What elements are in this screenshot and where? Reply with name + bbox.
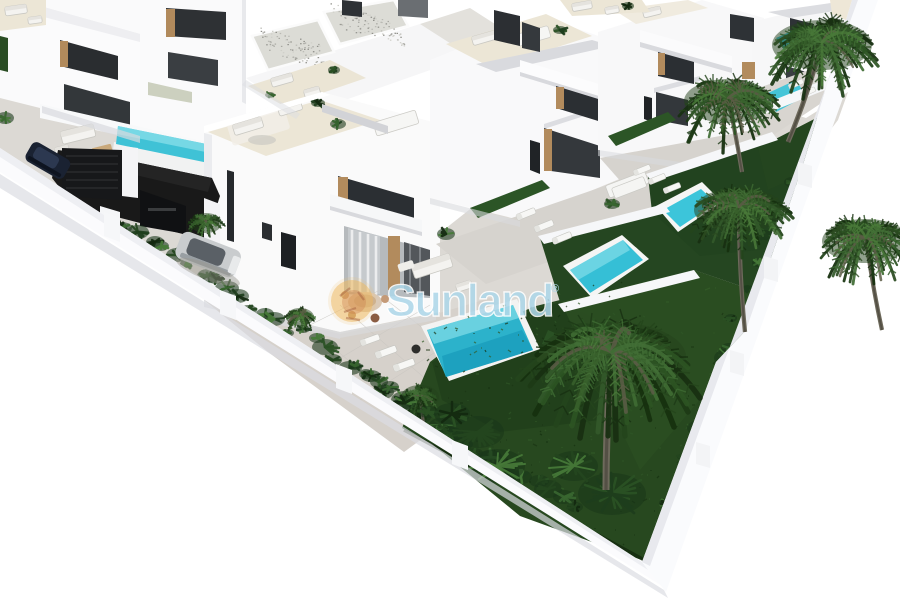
svg-text:Sunland: Sunland	[386, 275, 553, 326]
svg-text:®: ®	[551, 283, 559, 295]
